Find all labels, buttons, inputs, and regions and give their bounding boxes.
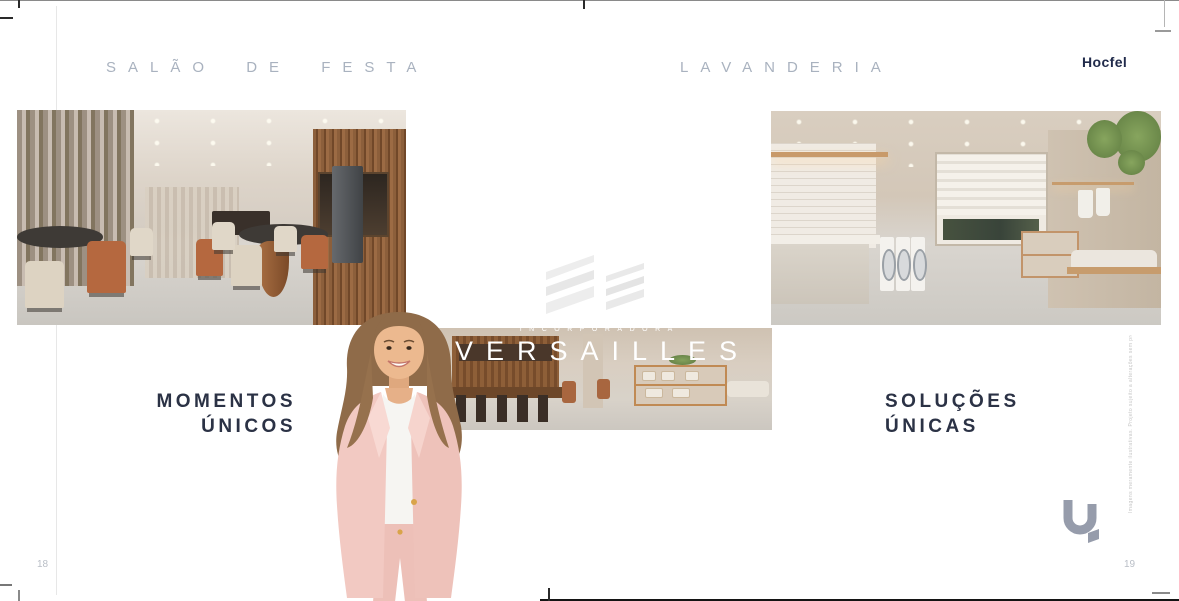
u-logomark-icon — [1060, 498, 1100, 544]
page-top-edge-line — [0, 0, 1179, 1]
eye — [406, 346, 411, 350]
eye — [386, 346, 391, 350]
crop-mark — [18, 590, 20, 601]
chair — [231, 245, 262, 286]
right-caption-line1: SOLUÇÕES — [885, 389, 1085, 414]
right-crop-rule — [1164, 0, 1165, 27]
dining-chair — [562, 381, 576, 403]
basket — [672, 388, 690, 398]
chair — [212, 222, 235, 250]
crop-mark — [583, 0, 585, 9]
page-number-left: 18 — [37, 559, 48, 570]
crop-mark — [1152, 592, 1170, 594]
right-caption: SOLUÇÕES ÚNICAS — [885, 389, 1085, 439]
blazer-button — [411, 499, 417, 505]
left-caption: MOMENTOS ÚNICOS — [116, 389, 296, 439]
crop-mark — [18, 0, 20, 8]
washing-machine — [880, 237, 894, 291]
crop-mark — [1155, 30, 1171, 32]
left-page-heading: SALÃO DE FESTA — [106, 59, 428, 76]
vertical-disclaimer: Imagens meramente ilustrativas. Projeto … — [1128, 335, 1138, 513]
chair — [87, 241, 126, 293]
crop-mark — [548, 588, 550, 601]
basket — [645, 388, 663, 398]
fridge — [332, 166, 363, 263]
laundry-render-image — [771, 111, 1161, 325]
bench-wood-base — [1067, 267, 1161, 273]
bench-cushion — [727, 381, 768, 397]
left-caption-line1: MOMENTOS — [116, 389, 296, 414]
bar-stool — [517, 395, 527, 422]
basket — [642, 371, 656, 381]
laundry-shelf-unit — [634, 365, 727, 406]
chair — [274, 226, 297, 252]
washing-machine — [911, 237, 925, 291]
subway-tile-wall — [771, 143, 876, 248]
roller-blind — [937, 154, 1046, 215]
chair — [25, 261, 64, 308]
model-photo — [293, 306, 505, 601]
basket — [661, 371, 675, 381]
sink-counter — [771, 235, 880, 244]
fern-plant — [1087, 120, 1122, 159]
chair — [130, 228, 153, 256]
left-caption-line2: ÚNICOS — [116, 414, 296, 439]
crop-mark — [0, 17, 13, 19]
building-watermark-icon — [518, 246, 674, 324]
small-plant — [669, 355, 697, 365]
brand-wordmark: Hocfel — [1082, 54, 1127, 70]
hanging-shirt — [1078, 190, 1093, 218]
dining-chair — [597, 379, 611, 399]
page-number-right: 19 — [1124, 559, 1135, 570]
party-room-render-image — [17, 110, 406, 325]
hanging-rail — [1052, 182, 1134, 185]
bar-stool — [538, 395, 548, 422]
washing-machine — [896, 237, 910, 291]
chair — [301, 235, 328, 269]
right-page-heading: LAVANDERIA — [680, 59, 893, 76]
wood-shelf-led — [771, 152, 888, 158]
trouser-button — [397, 529, 402, 534]
brochure-spread: SALÃO DE FESTA LAVANDERIA Hocfel — [0, 0, 1179, 601]
hanging-shirt — [1096, 188, 1111, 216]
cabinets — [771, 244, 869, 304]
crop-mark — [0, 584, 12, 586]
basket — [685, 371, 699, 381]
right-caption-line2: ÚNICAS — [885, 414, 1085, 439]
